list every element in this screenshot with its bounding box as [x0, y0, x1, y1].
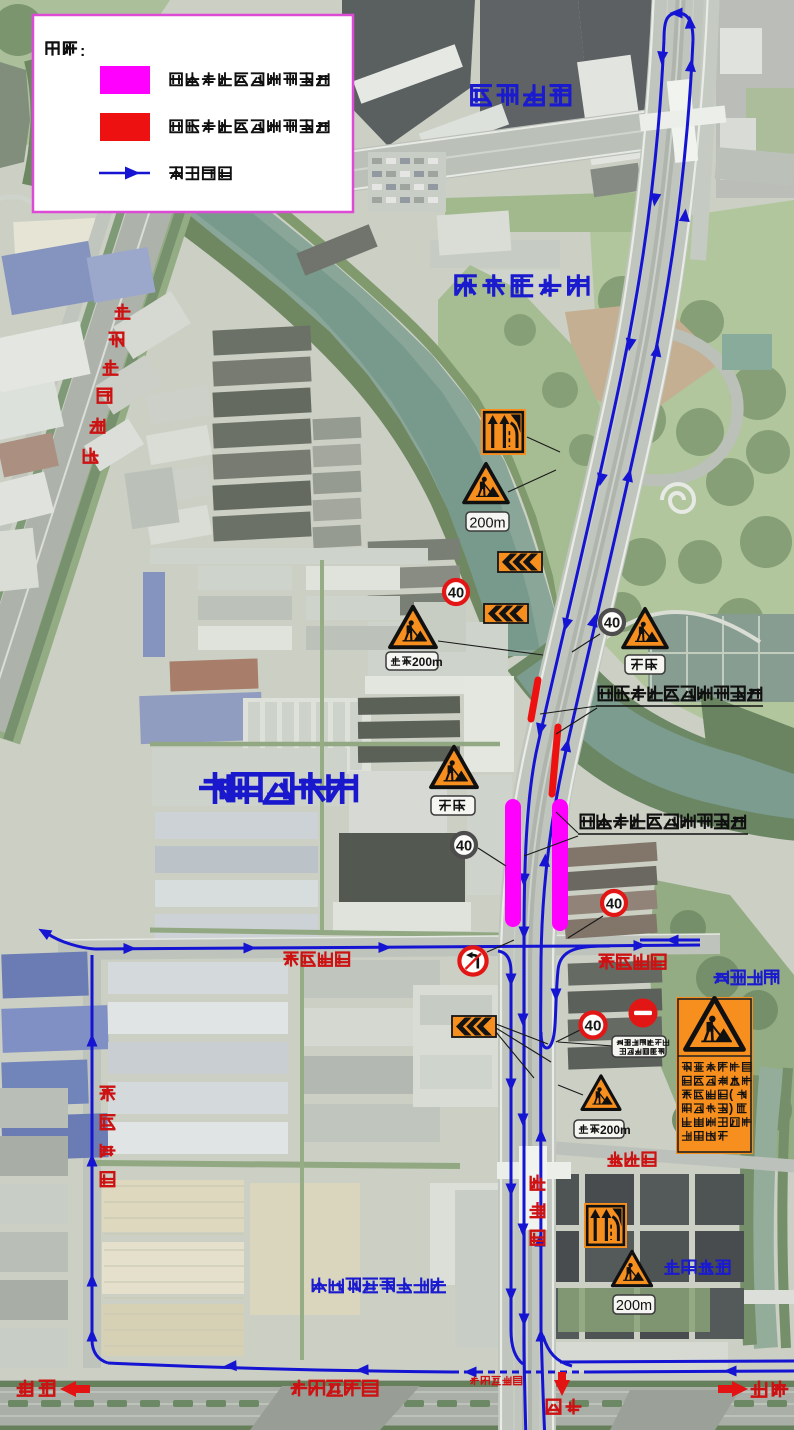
svg-text:40: 40 [456, 838, 472, 854]
svg-text:200m: 200m [412, 655, 443, 669]
svg-text:200m: 200m [600, 1123, 631, 1137]
svg-text:): ) [729, 1101, 733, 1115]
svg-text:40: 40 [604, 615, 620, 631]
svg-text:40: 40 [606, 896, 622, 912]
svg-text:200m: 200m [616, 1298, 652, 1314]
svg-text:40: 40 [448, 585, 464, 601]
svg-text:200m: 200m [469, 516, 505, 532]
svg-text::: : [80, 43, 85, 60]
svg-text:40: 40 [585, 1018, 602, 1035]
